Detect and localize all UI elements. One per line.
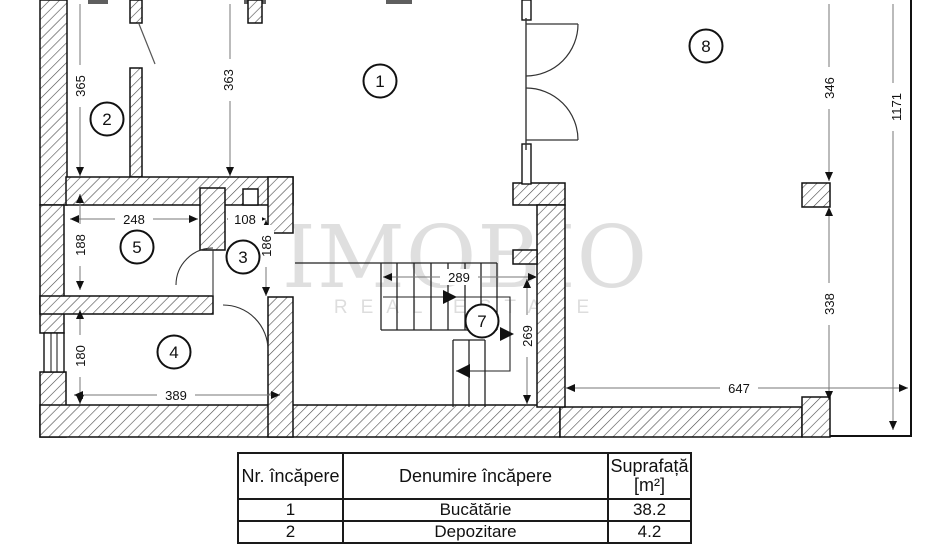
dim-647: 647 <box>728 381 750 396</box>
cell-nr: 2 <box>238 521 343 543</box>
floor-plan: IMOBIO REAL ESTATE <box>0 0 938 452</box>
room-label-4: 4 <box>169 343 178 362</box>
dim-365: 365 <box>73 75 88 97</box>
room-label-5: 5 <box>132 238 141 257</box>
dim-389: 389 <box>165 388 187 403</box>
wall <box>802 183 830 207</box>
dim-108: 108 <box>234 212 256 227</box>
header-nr: Nr. încăpere <box>238 453 343 499</box>
dim-248: 248 <box>123 212 145 227</box>
room-label-7: 7 <box>477 312 486 331</box>
wall <box>268 297 293 437</box>
wall <box>130 68 142 177</box>
header-area-line2: [m²] <box>609 476 690 495</box>
dim-346: 346 <box>822 77 837 99</box>
dim-186: 186 <box>259 235 274 257</box>
room-area-table: Nr. încăpere Denumire încăpere Suprafață… <box>237 452 692 544</box>
header-name: Denumire încăpere <box>343 453 608 499</box>
table-row: 2 Depozitare 4.2 <box>238 521 691 543</box>
room-label-3: 3 <box>238 248 247 267</box>
floorplan-page: { "watermark": { "brand": "IMOBIO", "tag… <box>0 0 938 527</box>
dim-289: 289 <box>448 270 470 285</box>
table-header-row: Nr. încăpere Denumire încăpere Suprafață… <box>238 453 691 499</box>
door-arc-room4 <box>223 305 268 350</box>
dim-188: 188 <box>73 234 88 256</box>
header-area-line1: Suprafață <box>609 457 690 476</box>
dim-1171: 1171 <box>889 93 904 121</box>
wall <box>560 407 802 437</box>
dim-363: 363 <box>221 69 236 91</box>
wall-opening <box>243 189 258 205</box>
table-row: 1 Bucătărie 38.2 <box>238 499 691 521</box>
wall <box>513 183 565 205</box>
door-leaf-room2 <box>139 24 155 64</box>
room-label-2: 2 <box>102 110 111 129</box>
boundary-lines <box>830 0 912 436</box>
room-label-8: 8 <box>701 37 710 56</box>
cell-area: 38.2 <box>608 499 691 521</box>
wall <box>40 0 67 205</box>
wall <box>40 296 213 314</box>
wall <box>200 188 225 250</box>
wall <box>537 205 565 407</box>
cell-name: Depozitare <box>343 521 608 543</box>
dim-180: 180 <box>73 345 88 367</box>
room-label-1: 1 <box>375 72 384 91</box>
cell-name: Bucătărie <box>343 499 608 521</box>
wall <box>66 177 293 205</box>
door-arc-room5 <box>176 248 213 285</box>
wall <box>268 177 293 233</box>
double-door <box>526 24 578 140</box>
cell-area: 4.2 <box>608 521 691 543</box>
wall <box>40 405 560 437</box>
wall <box>248 0 262 23</box>
wall <box>513 250 537 264</box>
wall <box>130 0 142 23</box>
wall <box>802 397 830 437</box>
cell-nr: 1 <box>238 499 343 521</box>
window-left-wall <box>44 333 64 372</box>
header-area: Suprafață [m²] <box>608 453 691 499</box>
dim-338: 338 <box>822 293 837 315</box>
dim-269: 269 <box>520 325 535 347</box>
